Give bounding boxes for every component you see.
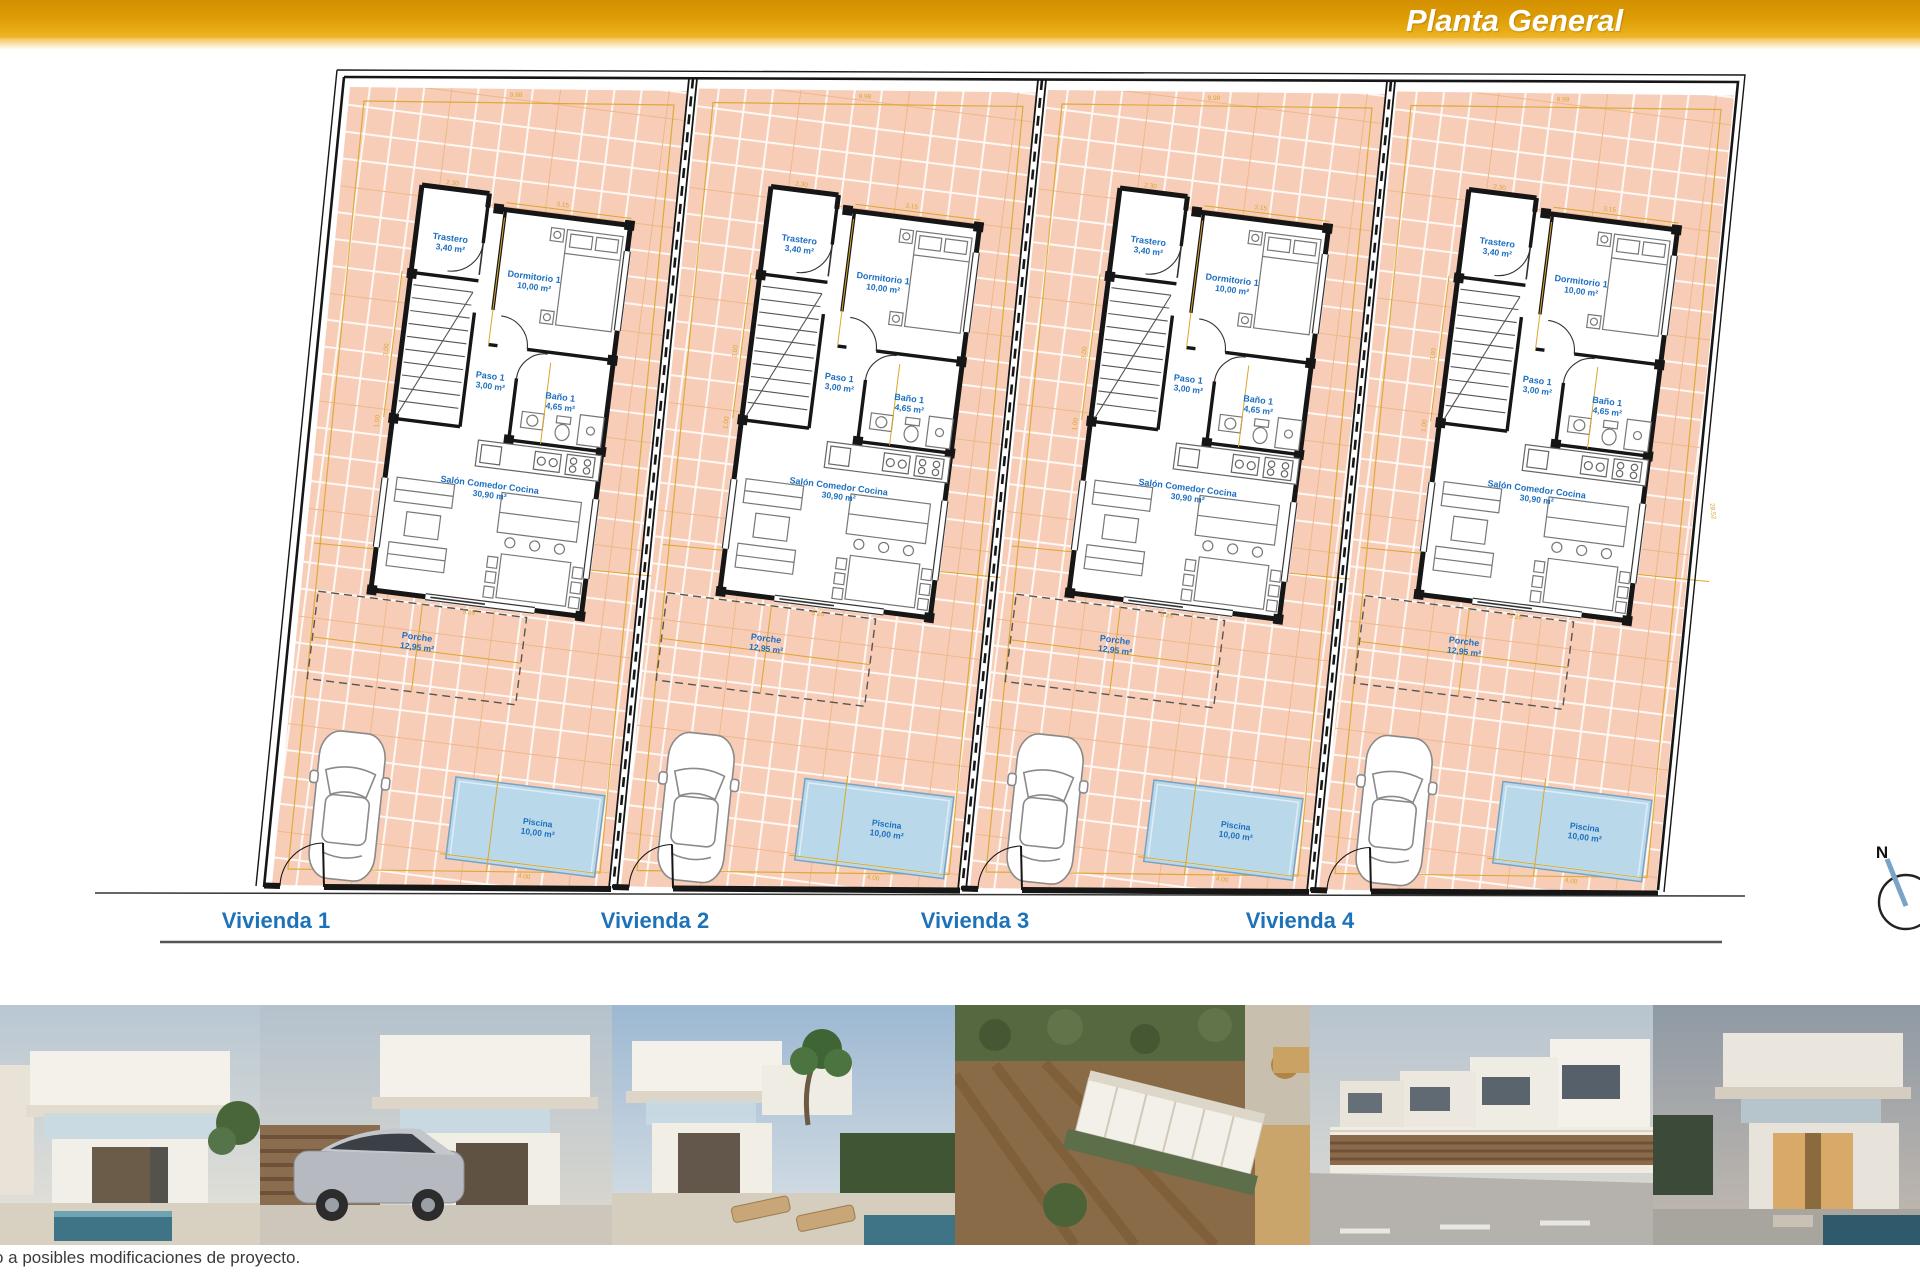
- north-compass: N: [1876, 843, 1920, 929]
- svg-text:9.98: 9.98: [510, 92, 523, 99]
- render-villa-driveway-car: [260, 1005, 612, 1245]
- room-label: Baño 1 4,65 m²: [1590, 395, 1625, 419]
- room-label: Porche 12,95 m²: [749, 632, 785, 656]
- render-aerial-development: [955, 1005, 1310, 1245]
- room-label: Baño 1 4,65 m²: [892, 392, 927, 416]
- svg-text:9.98: 9.98: [859, 94, 872, 101]
- room-label: Baño 1 4,65 m²: [1241, 393, 1276, 417]
- render-villa-garden-loungers-art: [612, 1005, 955, 1245]
- render-street-row-villas: [1310, 1005, 1653, 1245]
- render-villa-dusk-pool-art: [1653, 1005, 1920, 1245]
- room-label: Porche 12,95 m²: [1447, 635, 1483, 659]
- vivienda-label: Vivienda 4: [1246, 908, 1355, 933]
- disclaimer-caption: o a posibles modificaciones de proyecto.: [0, 1248, 300, 1268]
- room-label: Paso 1 3,00 m²: [474, 369, 508, 393]
- room-label: Porche 12,95 m²: [400, 630, 436, 654]
- plan-sheet: Planta General 9.98 28.52: [0, 0, 1920, 1280]
- render-villa-dusk-pool: [1653, 1005, 1920, 1245]
- site-plan: 9.98 28.52: [0, 0, 1920, 1005]
- vivienda-label: Vivienda 3: [921, 908, 1029, 933]
- room-label: Piscina 10,00 m²: [520, 816, 556, 840]
- svg-text:9.98: 9.98: [1557, 97, 1570, 104]
- render-street-row-villas-art: [1310, 1005, 1653, 1245]
- svg-text:9.98: 9.98: [1208, 95, 1221, 102]
- render-villa-front-pool-art: [0, 1005, 260, 1245]
- svg-text:28.52: 28.52: [1708, 503, 1717, 520]
- room-label: Piscina 10,00 m²: [869, 817, 905, 841]
- room-label: Piscina 10,00 m²: [1218, 819, 1254, 843]
- vivienda-label: Vivienda 2: [601, 908, 709, 933]
- svg-text:N: N: [1876, 843, 1888, 862]
- render-aerial-development-art: [955, 1005, 1310, 1245]
- room-label: Porche 12,95 m²: [1098, 633, 1134, 657]
- room-label: Paso 1 3,00 m²: [1172, 372, 1206, 396]
- room-label: Paso 1 3,00 m²: [1521, 374, 1555, 398]
- render-villa-front-pool: [0, 1005, 260, 1245]
- render-photo-strip: [0, 1005, 1920, 1245]
- render-villa-driveway-car-art: [260, 1005, 612, 1245]
- render-villa-garden-loungers: [612, 1005, 955, 1245]
- vivienda-label: Vivienda 1: [222, 908, 330, 933]
- room-label: Baño 1 4,65 m²: [543, 390, 578, 414]
- room-label: Paso 1 3,00 m²: [823, 371, 857, 395]
- room-label: Piscina 10,00 m²: [1567, 820, 1603, 844]
